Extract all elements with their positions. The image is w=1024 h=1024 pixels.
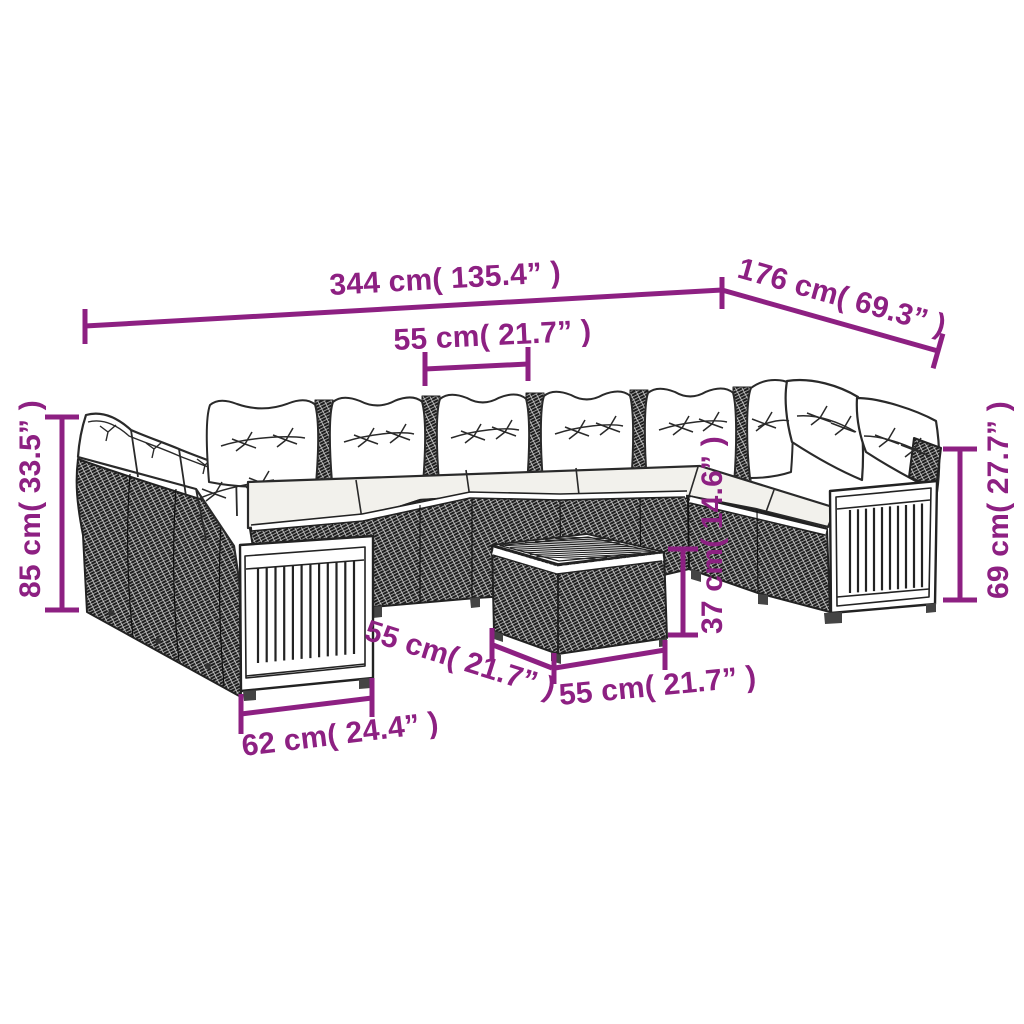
svg-text:37 cm( 14.6” ): 37 cm( 14.6” ) [696, 436, 729, 634]
svg-text:85 cm( 33.5” ): 85 cm( 33.5” ) [14, 400, 47, 598]
svg-text:69 cm( 27.7” ): 69 cm( 27.7” ) [982, 401, 1015, 599]
